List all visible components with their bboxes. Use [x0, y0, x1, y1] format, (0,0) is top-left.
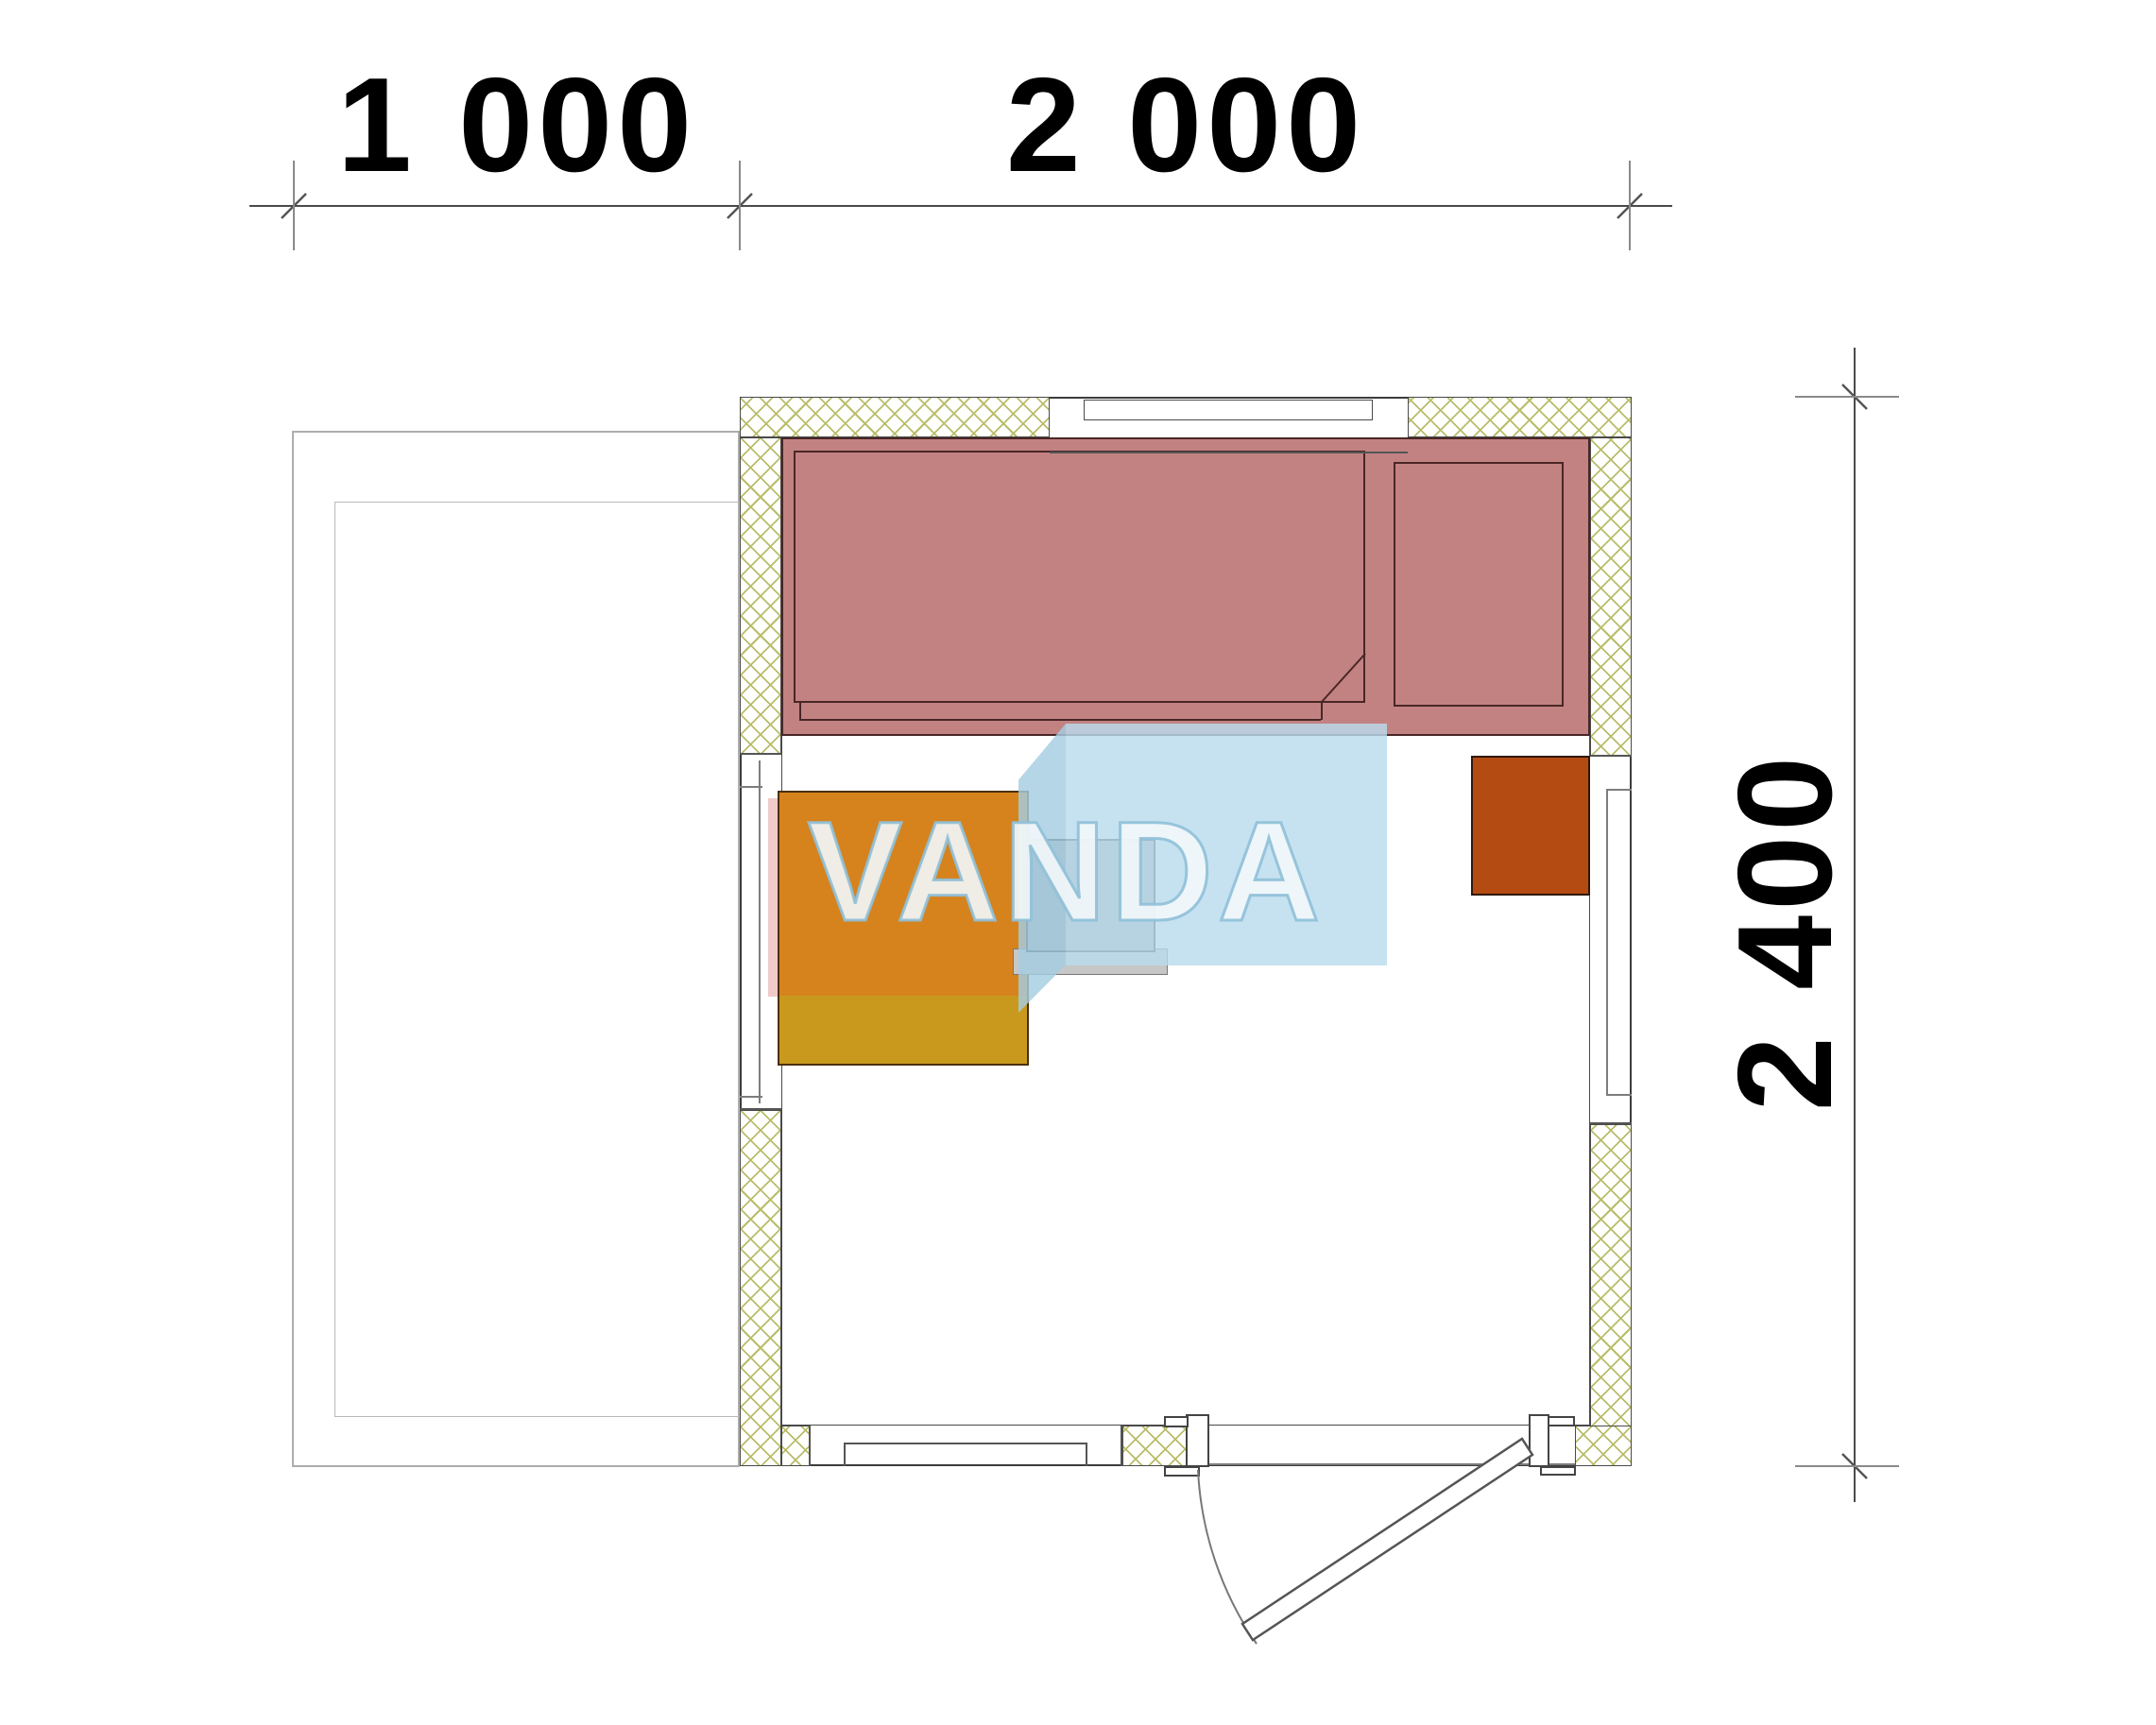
dimension-line-top [249, 205, 1672, 207]
dim-label-building-width: 2 000 [740, 59, 1632, 193]
floor-plan-canvas: VANDA 1 000 2 000 2 400 [0, 0, 2156, 1725]
door-swing-arc [1198, 1470, 1257, 1644]
dim-label-building-depth: 2 400 [1719, 397, 1853, 1466]
door-leaf [1242, 1439, 1532, 1640]
dim-label-terrace-width: 1 000 [294, 59, 740, 193]
watermark-text: VANDA [808, 800, 1325, 942]
bench-diagonal-edge [1321, 654, 1365, 703]
